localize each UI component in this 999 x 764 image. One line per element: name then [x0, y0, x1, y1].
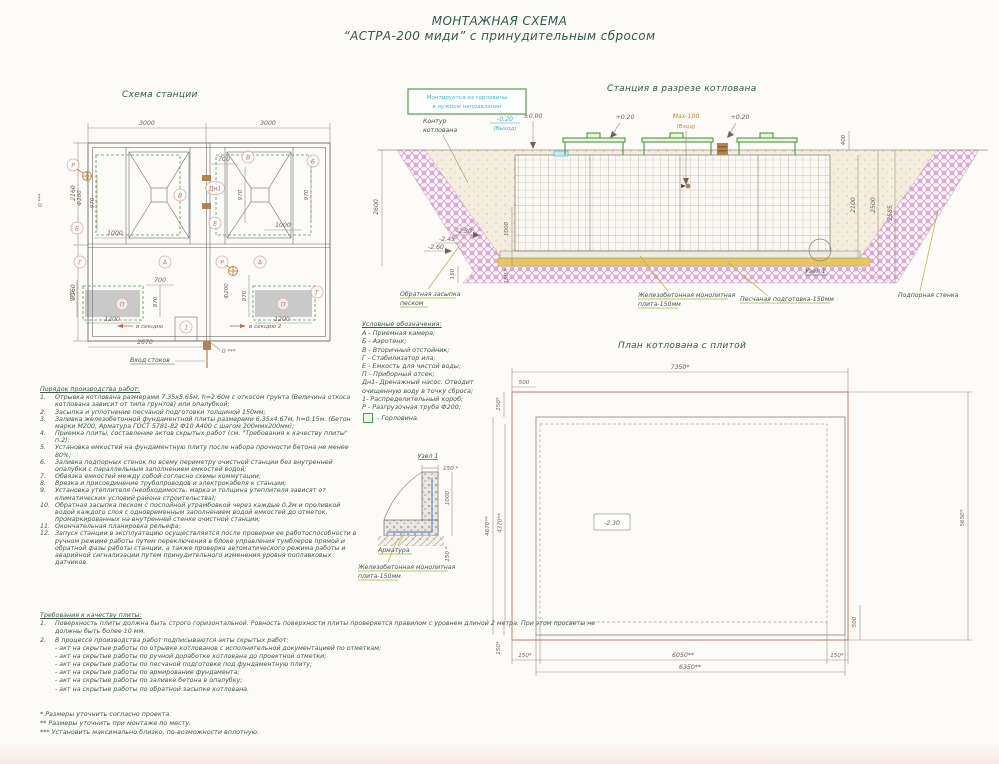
dim-150s-v: 150 * — [504, 268, 510, 283]
legend-item: Б - Аэротенк; — [362, 337, 502, 345]
work-order-item: 2. Засыпка и уплотнение песчаной подгото… — [40, 409, 362, 416]
dim-700-bottom: 700 — [154, 277, 166, 284]
pit-plan-rects: -2.30 — [512, 392, 848, 640]
dim-970-1: 970 — [90, 197, 96, 208]
backfill-label-1: Обратная засыпка — [400, 290, 461, 298]
quality-act-item: - акт на скрытые работы по отрывке котло… — [40, 645, 600, 653]
work-order-item-text: Запуск станции в эксплуатацию осуществля… — [55, 530, 362, 566]
work-order-item: 5. Установка емкостей на фундаментную пл… — [40, 444, 362, 458]
work-order-item-number: 7. — [40, 473, 55, 480]
work-order-item-number: 5. — [40, 444, 55, 451]
max100-mark: Мах-100 — [673, 113, 700, 120]
work-order-item-text: Установка утеплителя (необходимость, мар… — [55, 487, 362, 501]
work-order-item-number: 12. — [40, 530, 55, 537]
quality-item-2-number: 2. — [40, 637, 55, 645]
station-tank-section — [515, 151, 830, 251]
cross-section-drawing: Монтируется из горловины в нужном направ… — [368, 85, 998, 333]
node-detail-geometry — [378, 472, 444, 546]
dim-zero-left: 0 *** — [38, 193, 44, 207]
letter-R1: Р — [71, 163, 75, 170]
quality-act-item: - акт на скрытые работы по обратной засы… — [40, 686, 600, 694]
footnote-line: * Размеры уточнить согласно проекта. — [40, 710, 440, 719]
main-title: МОНТАЖНАЯ СХЕМА “АСТРА-200 миди” с прину… — [0, 14, 999, 44]
dim-2160-top: 2160 — [70, 185, 77, 201]
legend-item: В - Вторичный отстойник; — [362, 346, 502, 354]
quality-item-1: 1. Поверхность плиты должна быть строго … — [40, 620, 600, 636]
sand-prep-label: Песчаная подготовка-150мм — [740, 296, 834, 303]
letter-B2: Б — [311, 159, 315, 166]
letter-R2: Р — [220, 260, 224, 267]
mark-230: -2.30 — [456, 228, 472, 235]
legend-neck-text: - Горловина. — [377, 414, 419, 422]
letter-1: 1 — [184, 325, 188, 332]
contour-line2: котлована — [423, 127, 457, 134]
letter-Dn1: Дн1 — [208, 186, 221, 193]
to-section-1-label: в секцию — [136, 324, 163, 330]
main-title-line2: “АСТРА-200 миди” с принудительным сбросо… — [0, 29, 999, 44]
dim-2100: 2100 — [850, 197, 857, 213]
work-order-item-text: Обратная засыпка песком с послойной утра… — [55, 502, 362, 524]
work-order-item: 10. Обратная засыпка песком с послойной … — [40, 502, 362, 524]
work-order-title: Порядок производства работ: — [40, 386, 362, 393]
inlet-pipe-connector — [717, 143, 728, 155]
work-order-item: 9. Установка утеплителя (необходимость, … — [40, 487, 362, 501]
footnote-line: *** Установить максимально близко, по-во… — [40, 728, 440, 737]
inlet-point — [686, 184, 691, 189]
work-order-item-number: 11. — [40, 523, 55, 530]
mounting-note: Монтируется из горловины в нужном направ… — [408, 89, 526, 114]
work-order-item-text: Заливка железобетонной фундаментной плит… — [55, 416, 362, 430]
dim-970-3: 970 — [304, 189, 310, 200]
dim-500-top: 500 — [519, 380, 530, 386]
footnote-line: ** Размеры уточнить при монтаже по месту… — [40, 719, 440, 728]
dim-150-b2: 150* — [830, 653, 844, 659]
main-title-line1: МОНТАЖНАЯ СХЕМА — [0, 14, 999, 29]
slab-label-2: плита-150мм — [638, 301, 681, 308]
dim-150-topleft: 150* — [496, 397, 502, 411]
node-slab-label-2: плита-150мм — [358, 573, 401, 580]
dim-5650: 5650* — [960, 509, 966, 526]
letter-P2: П — [281, 302, 286, 309]
work-order-item-number: 9. — [40, 487, 55, 494]
work-order-item-number: 4. — [40, 430, 55, 437]
legend-item: А - Приемная камера; — [362, 329, 502, 337]
outlet-pipe-stub — [554, 151, 568, 156]
dim-150-left: 150 — [450, 268, 456, 279]
dim-1200-1: 1200 — [104, 316, 120, 323]
zero-mark: ±0.00 — [524, 113, 543, 120]
quality-act-item: - акт на скрытые работы по заливке бетон… — [40, 677, 600, 685]
footnotes-block: * Размеры уточнить согласно проекта. ** … — [40, 710, 440, 737]
note-line2: в нужном направлении — [432, 104, 501, 110]
work-order-item-number: 6. — [40, 459, 55, 466]
work-order-item-text: Установка емкостей на фундаментную плиту… — [55, 444, 362, 458]
dim-1000-1: 1000 — [107, 230, 123, 237]
quality-title: Требования к качеству плиты: — [40, 612, 600, 619]
dim-2670: 2670 — [137, 339, 153, 346]
quality-act-item: - акт на скрытые работы по песчаной подг… — [40, 661, 600, 669]
letter-V1: В — [178, 193, 182, 200]
rebar-label: Арматура — [377, 547, 410, 554]
dim-3000-right: 3000 — [260, 120, 276, 127]
work-order-item: 1. Отрывка котлована размерами 7.35х5.65… — [40, 394, 362, 408]
letter-P1: П — [120, 302, 125, 309]
dim-zero-bottom: 0 *** — [222, 349, 236, 355]
contour-line1: Контур — [423, 118, 446, 125]
drawing-sheet: МОНТАЖНАЯ СХЕМА “АСТРА-200 миди” с прину… — [0, 0, 999, 764]
mark-245: -2.45 — [439, 236, 455, 243]
work-order-item: 3. Заливка железобетонной фундаментной п… — [40, 416, 362, 430]
quality-item-2: 2. В процессе производства работ подписы… — [40, 637, 600, 645]
inlet-label: Вход стоков — [130, 357, 170, 364]
work-order-item-text: Засыпка и уплотнение песчаной подготовки… — [55, 409, 362, 416]
backfill-label-2: песком — [400, 300, 424, 307]
work-order-item-text: Заливка подпорных стенок по всему периме… — [55, 459, 362, 473]
work-order-item-number: 1. — [40, 394, 55, 401]
node-detail-title: Узел 1 — [418, 453, 439, 460]
work-order-item: 12. Запуск станции в эксплуатацию осущес… — [40, 530, 362, 566]
node-slab-label-1: Железобетонная монолитная — [357, 563, 456, 571]
legend-title: Условные обозначения: — [362, 320, 502, 328]
dim-970-6: 970 — [242, 290, 248, 301]
dim-1000-2: 1000 — [275, 222, 291, 229]
plus020-b: +0.20 — [731, 114, 750, 121]
dim-phi200-1: Ф200 — [77, 190, 83, 206]
node-detail-drawing: Узел 1 150 * 1000 150 * Арматура Железоб… — [350, 448, 510, 588]
dim-970-5: 970 — [153, 296, 159, 307]
outlet-level: -0.20 — [497, 116, 513, 123]
inlet-mark: (Вход) — [677, 124, 696, 130]
work-order-item: 4. Приемка плиты, составление актов скры… — [40, 430, 362, 444]
dim-1000-v: 1000 — [504, 221, 510, 236]
work-order-item-number: 2. — [40, 409, 55, 416]
work-order-item-text: Отрывка котлована размерами 7.35х5.65м, … — [55, 394, 362, 408]
dim-970-4: 970 — [70, 290, 76, 301]
quality-item-1-number: 1. — [40, 620, 55, 628]
quality-item-2-text: В процессе производства работ подписываю… — [55, 637, 600, 645]
dim-6350: 6350** — [679, 664, 701, 671]
plus020-a: +0.20 — [616, 114, 635, 121]
node1-ref-label: Узел 1 — [805, 268, 826, 275]
quality-block: Требования к качеству плиты: 1. Поверхно… — [40, 612, 600, 694]
dim-3000-left: 3000 — [139, 120, 155, 127]
dim-6050: 6050** — [672, 652, 694, 659]
letter-A1: А — [162, 260, 167, 267]
to-section-2-label: в секцию 2 — [249, 324, 282, 330]
dim-1200-2: 1200 — [274, 316, 290, 323]
pit-plan-title: План котлована с плитой — [618, 341, 746, 351]
dim-970-2: 970 — [238, 189, 244, 200]
work-order-item: 6. Заливка подпорных стенок по всему пер… — [40, 459, 362, 473]
dim-phi200-2: Ф200 — [224, 283, 230, 299]
quality-item-1-text: Поверхность плиты должна быть строго гор… — [55, 620, 600, 636]
quality-acts-list: - акт на скрытые работы по отрывке котло… — [40, 645, 600, 694]
pipes — [77, 169, 238, 368]
dim-2500: 2500 — [870, 197, 877, 213]
note-line1: Монтируется из горловины — [427, 95, 508, 101]
quality-act-item: - акт на скрытые работы по ручной дорабо… — [40, 653, 600, 661]
work-order-item-number: 10. — [40, 502, 55, 509]
letter-E: Е — [213, 221, 217, 228]
work-order-item-text: Приемка плиты, составление актов скрытых… — [55, 430, 362, 444]
node-dim-150-top: 150 * — [443, 466, 458, 472]
station-plan-drawing: 3000 3000 2160 2160 0 *** 2670 700 700 9… — [30, 95, 360, 395]
letter-B1: Б — [75, 226, 79, 233]
slab-label-1: Железобетонная монолитная — [637, 291, 736, 299]
pit-depth-mark: -2.30 — [604, 520, 620, 527]
scan-artifact-band — [0, 742, 999, 764]
node-dim-1000: 1000 — [445, 490, 451, 505]
dim-400: 400 — [841, 134, 847, 145]
work-order-list: 1. Отрывка котлована размерами 7.35х5.65… — [40, 394, 362, 566]
retaining-wall-label: Подпорная стенка — [898, 292, 959, 299]
work-order-item-number: 3. — [40, 416, 55, 423]
letter-A2: А — [257, 260, 262, 267]
dim-500-right: 500 — [852, 616, 858, 627]
work-order-item-number: 8. — [40, 480, 55, 487]
outlet-mark: (Выход) — [493, 126, 516, 132]
letter-V2: В — [246, 155, 250, 162]
node-dim-150-bottom: 150 * — [445, 546, 451, 561]
neck-icon — [363, 413, 373, 423]
dim-2600: 2600 — [373, 199, 380, 215]
work-order-block: Порядок производства работ: 1. Отрывка к… — [40, 386, 362, 566]
dim-7350: 7350* — [671, 364, 690, 371]
dim-700-top: 700 — [218, 156, 230, 163]
mark-260: -2.60 — [428, 244, 444, 251]
dim-2585: 2585 — [887, 205, 894, 221]
